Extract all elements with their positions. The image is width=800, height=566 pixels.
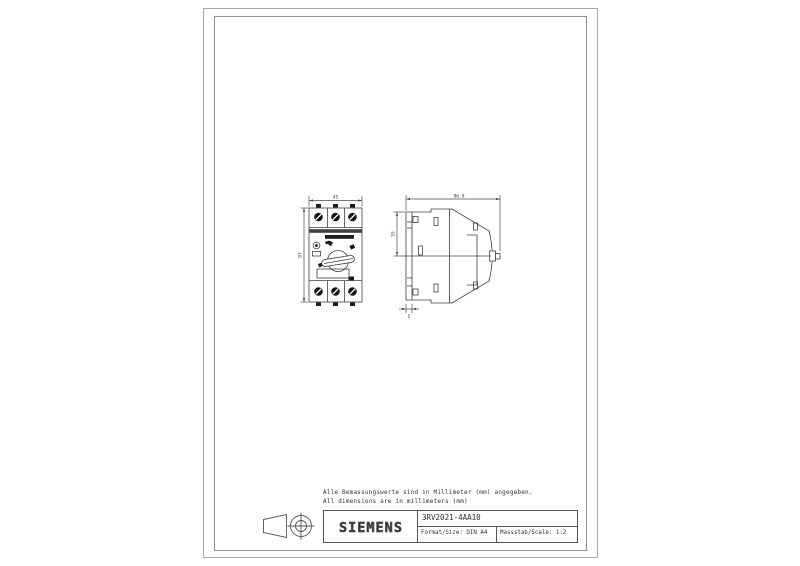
front-height-dimension: 97 bbox=[298, 252, 304, 258]
side-bottom-dimension: 5 bbox=[408, 314, 411, 320]
drawing-sheet-canvas: 45 97 bbox=[0, 0, 800, 566]
siemens-logo-text: SIEMENS bbox=[339, 520, 403, 536]
part-number: 3RV2021-4AA10 bbox=[418, 511, 577, 527]
front-width-dimension: 45 bbox=[333, 195, 339, 201]
dimension-notes: Alle Bemassungswerte sind in Millimeter … bbox=[323, 489, 533, 506]
projection-symbol-icon bbox=[264, 513, 315, 540]
side-depth-dimension: 96.9 bbox=[454, 193, 465, 199]
note-english: All dimensions are in millimeters (mm) bbox=[323, 498, 533, 507]
note-german: Alle Bemassungswerte sind in Millimeter … bbox=[323, 489, 533, 498]
siemens-logo: SIEMENS bbox=[324, 511, 418, 542]
technical-drawing: 45 97 bbox=[0, 0, 800, 566]
title-block: SIEMENS 3RV2021-4AA10 Format/Size: DIN A… bbox=[323, 510, 578, 543]
format-size-field: Format/Size: DIN A4 bbox=[418, 527, 497, 542]
side-upper-dimension: 55 bbox=[390, 231, 396, 237]
terminal-screws-bottom bbox=[314, 287, 357, 296]
scale-field: Massstab/Scale: 1:2 bbox=[497, 527, 577, 542]
front-view-drawing bbox=[309, 204, 362, 306]
terminal-screws-top bbox=[314, 213, 357, 222]
knob-shaft bbox=[490, 251, 501, 261]
